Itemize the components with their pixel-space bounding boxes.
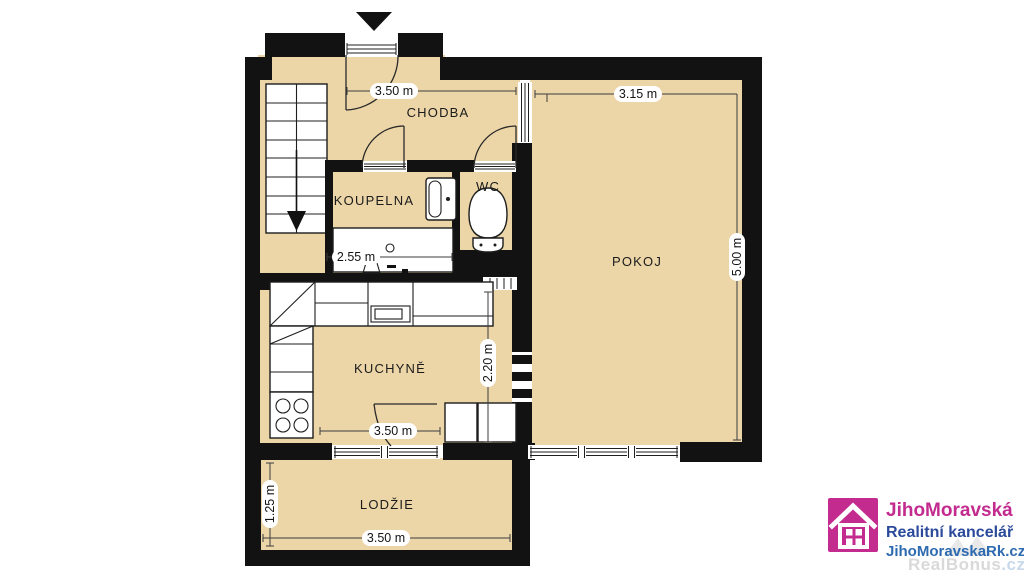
- pokoj-window: [528, 445, 680, 459]
- dim-koupelna-width-label: 2.55 m: [337, 250, 375, 264]
- dim-lodzie-depth-label: 1.25 m: [263, 485, 277, 523]
- staircase: [266, 84, 327, 233]
- washing-machine: [426, 178, 456, 220]
- floorplan-canvas: 3.50 m 3.15 m 5.00 m 2.55 m 2.20 m: [0, 0, 1024, 576]
- kitchen-cabinets: [445, 403, 516, 442]
- company-tagline: Realitní kancelář: [886, 524, 1014, 541]
- toilet: [469, 188, 507, 252]
- dim-entry-width-label: 3.50 m: [375, 84, 413, 98]
- chodba-label: CHODBA: [407, 105, 470, 120]
- dim-kuchyne-width-label: 3.50 m: [374, 424, 412, 438]
- stove: [270, 392, 313, 438]
- wc-door-sill: [474, 161, 516, 172]
- dim-pokoj-depth-label: 5.00 m: [730, 238, 744, 276]
- koupelna-door-sill: [363, 161, 407, 172]
- entrance-door-sill: [345, 41, 398, 57]
- dim-kuchyne-depth-label: 2.20 m: [481, 344, 495, 382]
- pass-through-opening: [512, 352, 532, 402]
- lodzie-window: [332, 445, 440, 459]
- dim-pokoj-width-label: 3.15 m: [619, 87, 657, 101]
- watermark: RealBonus.cz: [908, 555, 1024, 574]
- pokoj-label: POKOJ: [612, 254, 662, 269]
- company-name: JihoMoravská: [886, 500, 1013, 521]
- brand-logo: JihoMoravská Realitní kancelář JihoMorav…: [828, 498, 1024, 574]
- wc-label: WC: [476, 179, 500, 194]
- entrance-arrow-icon: [356, 12, 392, 31]
- dim-lodzie-width-label: 3.50 m: [367, 531, 405, 545]
- lodzie-label: LODŽIE: [360, 497, 414, 512]
- kuchyne-label: KUCHYNĚ: [354, 361, 426, 376]
- koupelna-label: KOUPELNA: [334, 193, 414, 208]
- glazed-partition: [518, 82, 532, 143]
